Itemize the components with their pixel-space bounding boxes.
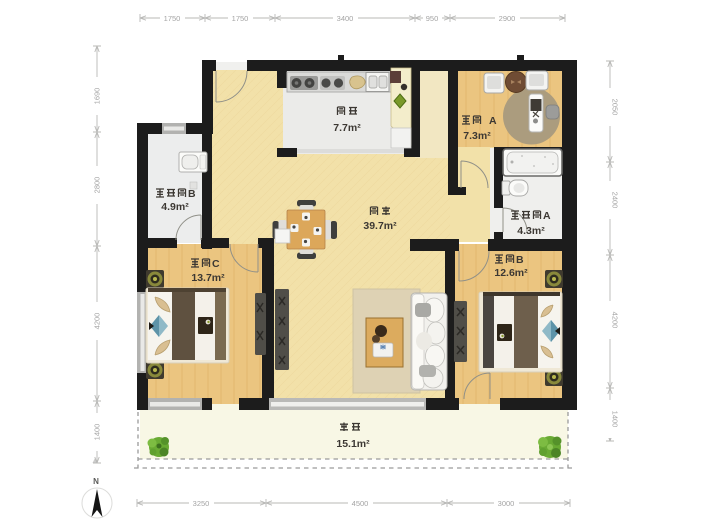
svg-text:4500: 4500 <box>352 499 369 508</box>
svg-text:A: A <box>489 115 497 127</box>
svg-text:13.7m²: 13.7m² <box>191 272 225 284</box>
svg-text:7.7m²: 7.7m² <box>333 122 361 134</box>
svg-text:B: B <box>516 254 524 266</box>
svg-text:4.9m²: 4.9m² <box>161 201 189 213</box>
svg-text:A: A <box>543 210 551 222</box>
svg-text:4200: 4200 <box>93 313 102 330</box>
svg-text:4.3m²: 4.3m² <box>517 225 545 237</box>
svg-text:2800: 2800 <box>93 177 102 194</box>
svg-text:39.7m²: 39.7m² <box>363 220 397 232</box>
svg-text:2400: 2400 <box>611 192 620 209</box>
svg-text:N: N <box>93 477 99 486</box>
svg-text:4200: 4200 <box>611 312 620 329</box>
svg-text:950: 950 <box>426 14 439 23</box>
svg-text:1750: 1750 <box>232 14 249 23</box>
svg-text:12.6m²: 12.6m² <box>494 267 528 279</box>
svg-text:15.1m²: 15.1m² <box>336 438 370 450</box>
svg-text:1400: 1400 <box>93 424 102 441</box>
svg-text:2050: 2050 <box>611 99 620 116</box>
svg-text:2900: 2900 <box>499 14 516 23</box>
svg-text:B: B <box>188 188 196 200</box>
svg-text:1690: 1690 <box>93 88 102 105</box>
svg-text:C: C <box>212 258 220 270</box>
svg-text:7.3m²: 7.3m² <box>463 130 491 142</box>
svg-text:1750: 1750 <box>164 14 181 23</box>
svg-text:3250: 3250 <box>193 499 210 508</box>
svg-text:3000: 3000 <box>498 499 515 508</box>
svg-text:1400: 1400 <box>611 411 620 428</box>
svg-text:3400: 3400 <box>337 14 354 23</box>
